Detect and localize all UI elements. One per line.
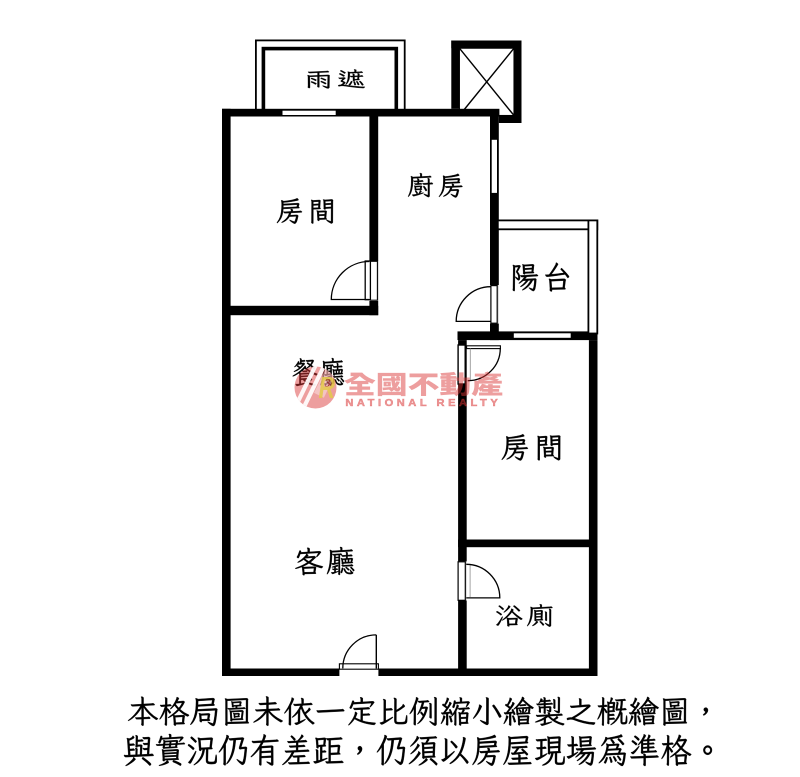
svg-text:NATIONAL REALTY: NATIONAL REALTY: [345, 398, 501, 409]
svg-text:3: 3: [324, 376, 331, 390]
